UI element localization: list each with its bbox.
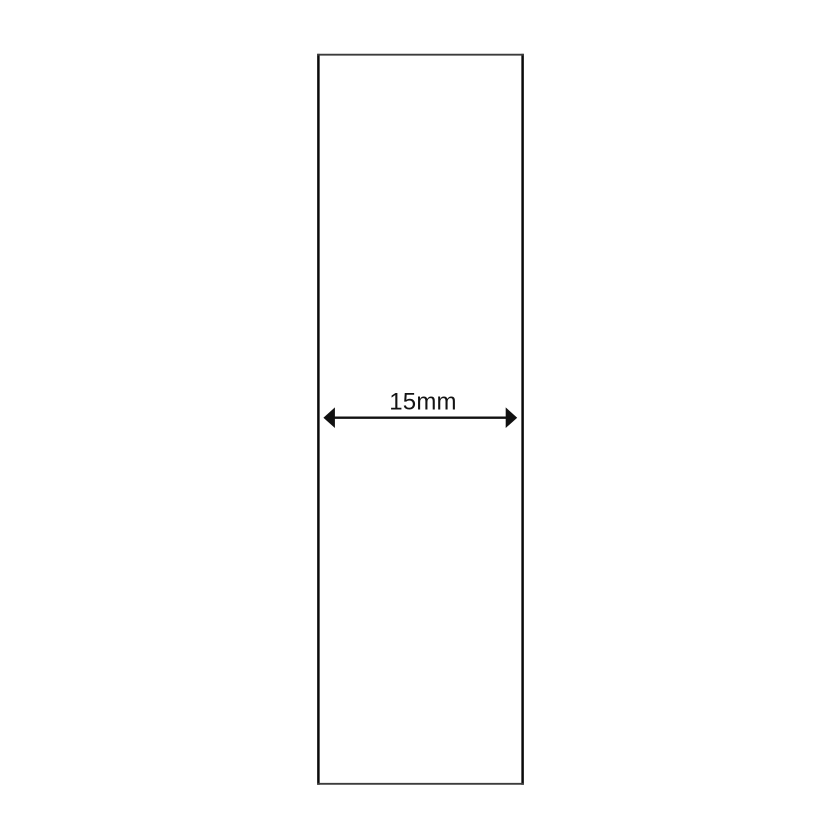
svg-text:15mm: 15mm [389, 389, 456, 416]
